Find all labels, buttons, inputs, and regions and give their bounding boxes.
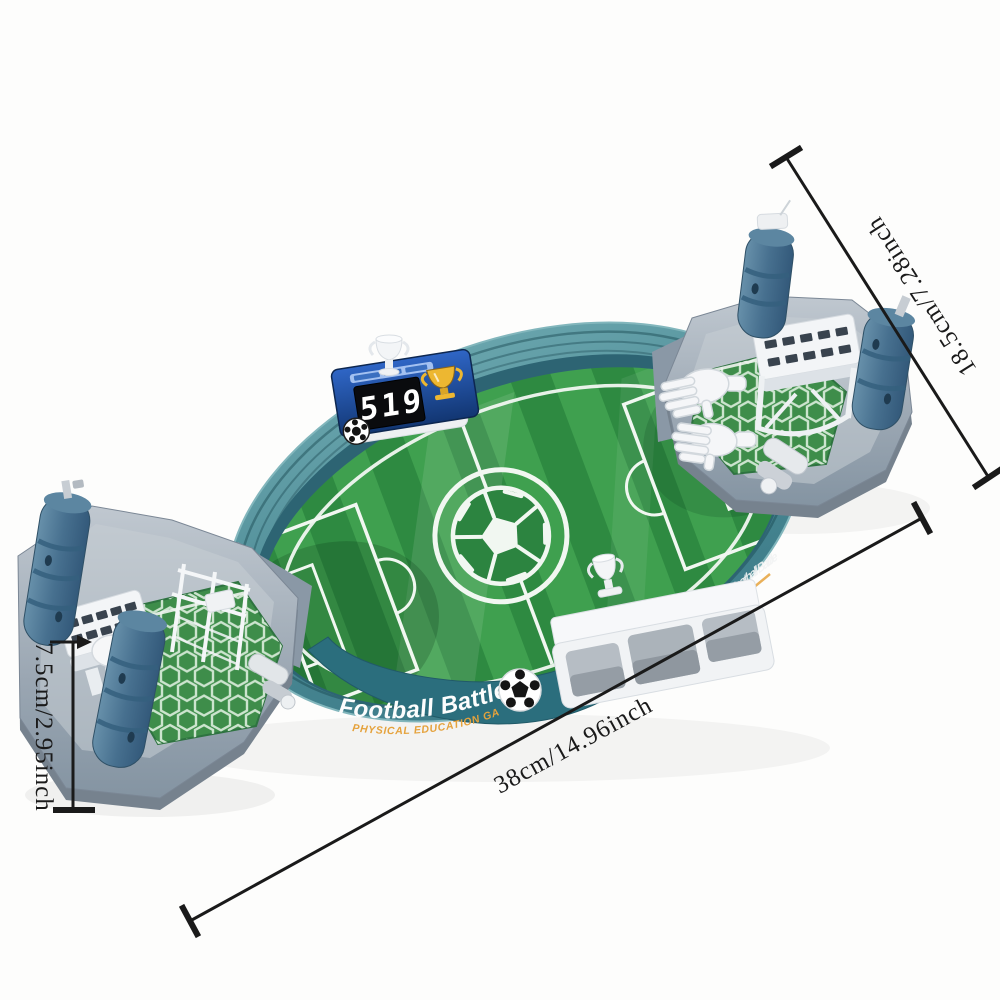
banner-soccer-ball-icon <box>499 669 541 711</box>
height-dimension-label: 7.5cm/2.95inch <box>30 642 57 812</box>
product-photo: Football Battle PHYSICAL EDUCATION GAME … <box>0 0 1000 1000</box>
illustration: Football Battle PHYSICAL EDUCATION GAME … <box>0 0 1000 1000</box>
